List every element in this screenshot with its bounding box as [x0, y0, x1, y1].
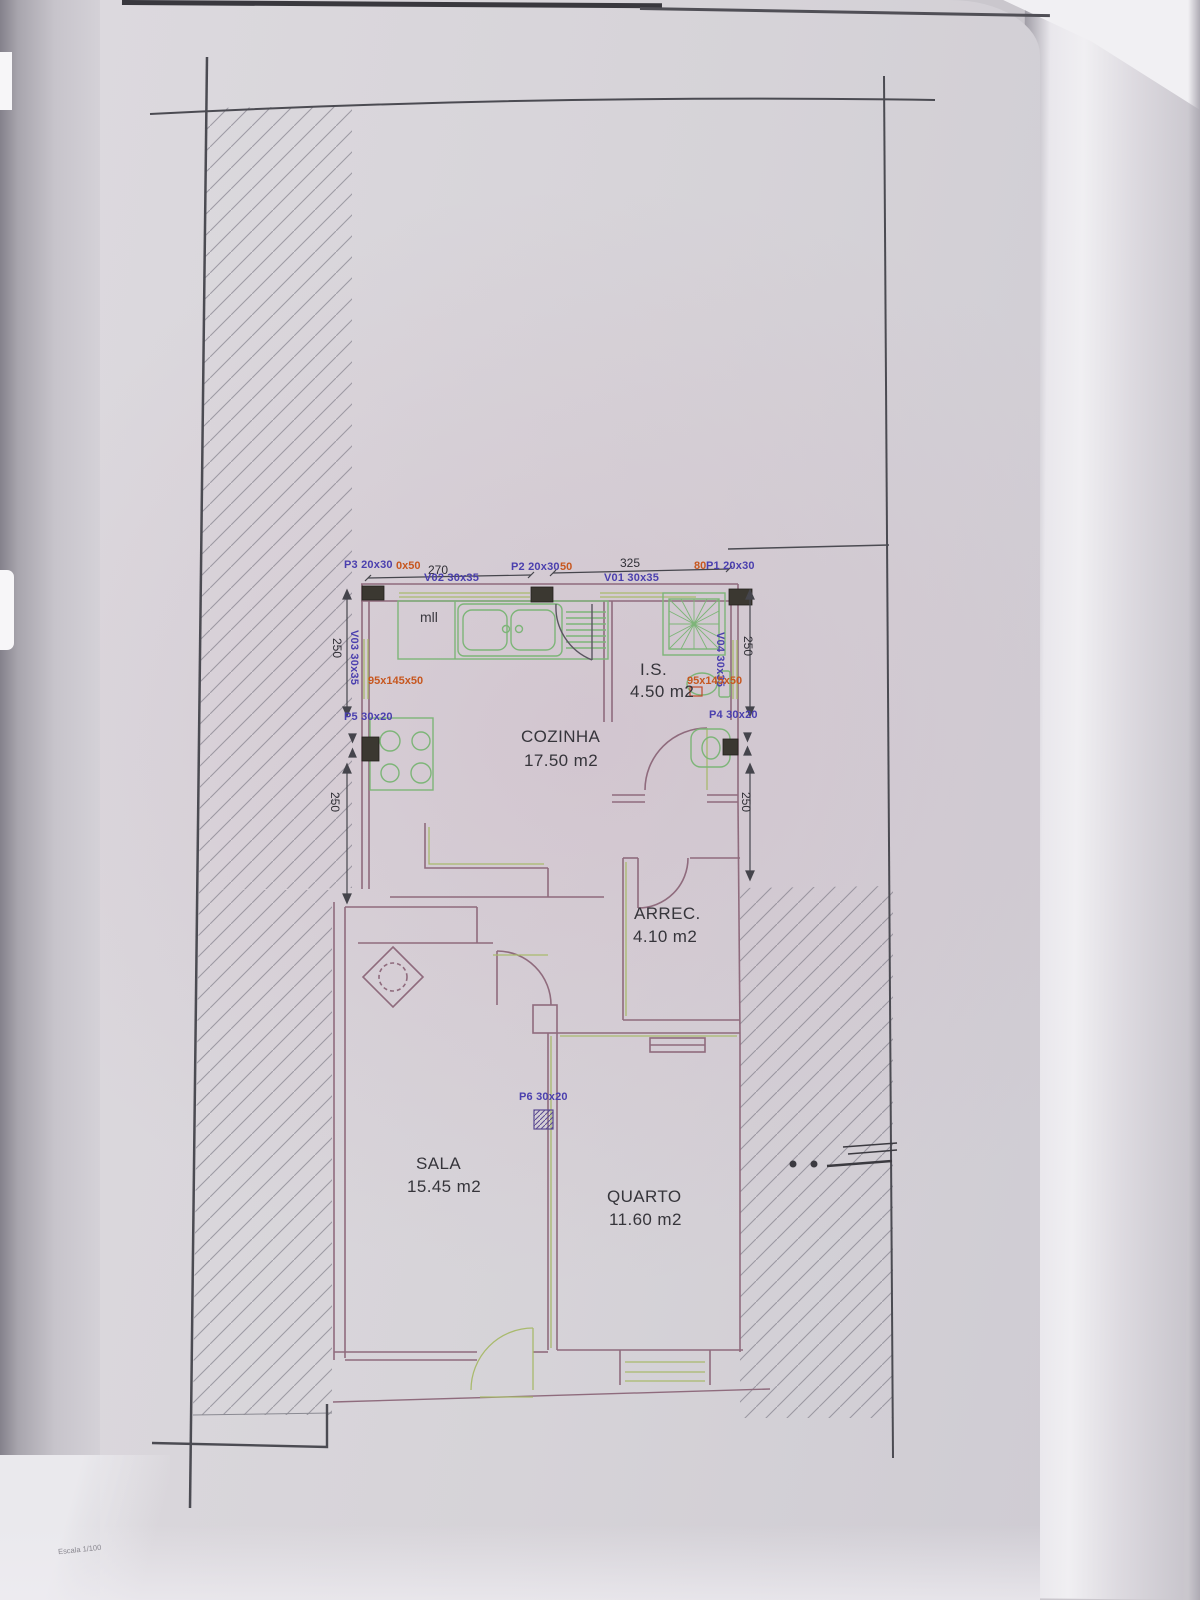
dim-250-right-upper: 250	[742, 636, 754, 656]
door-p3-extra: 0x50	[396, 561, 420, 572]
dim-250-left-upper: 250	[331, 638, 343, 658]
counter-dim-left: 95x145x50	[368, 676, 423, 687]
room-quarto-area: 11.60 m2	[609, 1211, 682, 1228]
room-arrec-area: 4.10 m2	[633, 928, 697, 945]
kitchen-note: mll	[420, 610, 438, 624]
door-p1-extra: 80	[694, 561, 706, 572]
room-is-area: 4.50 m2	[630, 683, 694, 700]
floor-plan-photo: P3 20x30 0x50 270 P2 20x30 50 325 80 P1 …	[0, 0, 1200, 1600]
door-p6-label: P6 30x20	[519, 1092, 568, 1103]
dim-325: 325	[620, 557, 640, 569]
door-p2-label: P2 20x30	[511, 562, 560, 573]
dim-250-left-lower: 250	[329, 792, 341, 812]
floor-plan-linework	[0, 0, 1200, 1600]
room-cozinha-name: COZINHA	[521, 728, 600, 745]
door-p6-symbol	[534, 1110, 553, 1129]
door-p5-label: P5 30x20	[344, 712, 393, 723]
window-v03-label: V03 30x35	[348, 630, 359, 685]
room-quarto-name: QUARTO	[607, 1188, 682, 1205]
room-is-name: I.S.	[640, 661, 667, 678]
door-p1-label: P1 20x30	[706, 561, 755, 572]
room-cozinha-area: 17.50 m2	[524, 752, 598, 769]
dim-250-right-lower: 250	[740, 792, 752, 812]
floor-plan: P3 20x30 0x50 270 P2 20x30 50 325 80 P1 …	[0, 0, 1200, 1600]
room-arrec-name: ARREC.	[634, 905, 701, 922]
door-p4-label: P4 30x20	[709, 710, 758, 721]
counter-dim-right: 95x145x50	[687, 676, 742, 687]
window-v02-label: V02 30x35	[424, 573, 479, 584]
room-sala-area: 15.45 m2	[407, 1178, 481, 1195]
window-v01-label: V01 30x35	[604, 573, 659, 584]
room-sala-name: SALA	[416, 1155, 461, 1172]
door-p3-label: P3 20x30	[344, 560, 393, 571]
door-p2-extra: 50	[560, 562, 572, 573]
